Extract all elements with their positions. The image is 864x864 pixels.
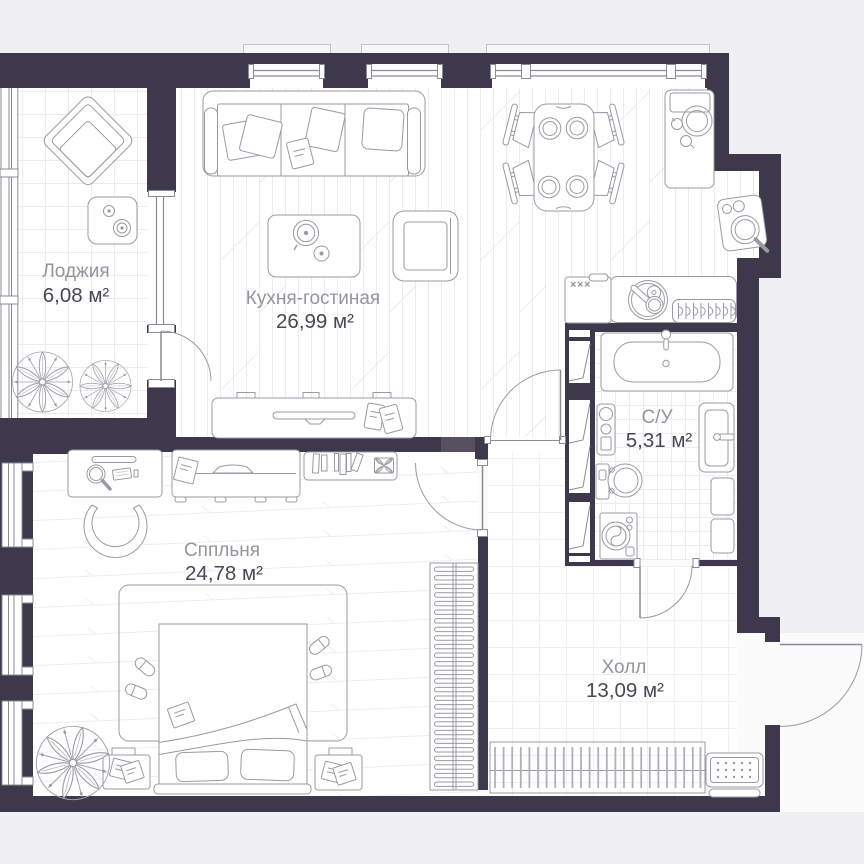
svg-text:Холл: Холл — [602, 657, 647, 678]
svg-text:6,08 м²: 6,08 м² — [43, 284, 110, 307]
svg-text:26,99 м²: 26,99 м² — [276, 310, 354, 333]
svg-text:Лоджия: Лоджия — [42, 261, 109, 282]
svg-text:Кухня-гостиная: Кухня-гостиная — [246, 288, 380, 309]
svg-text:Сппльня: Сппльня — [184, 540, 260, 561]
svg-text:5,31 м²: 5,31 м² — [626, 429, 693, 452]
svg-text:С/У: С/У — [641, 407, 673, 428]
svg-text:13,09 м²: 13,09 м² — [586, 679, 664, 702]
svg-text:24,78 м²: 24,78 м² — [185, 562, 263, 585]
